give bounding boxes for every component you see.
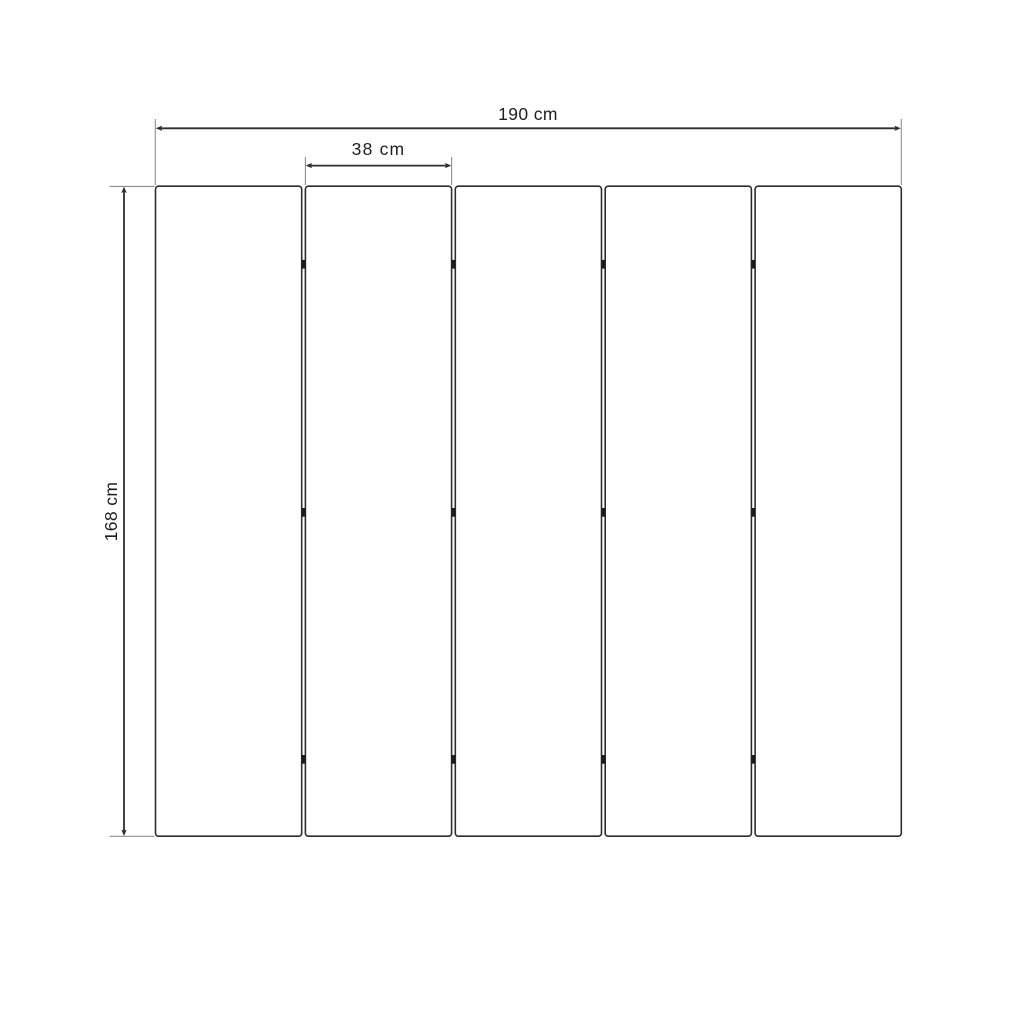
svg-text:168 cm: 168 cm bbox=[101, 482, 121, 542]
svg-text:38 cm: 38 cm bbox=[352, 139, 406, 159]
svg-text:190 cm: 190 cm bbox=[498, 104, 558, 124]
